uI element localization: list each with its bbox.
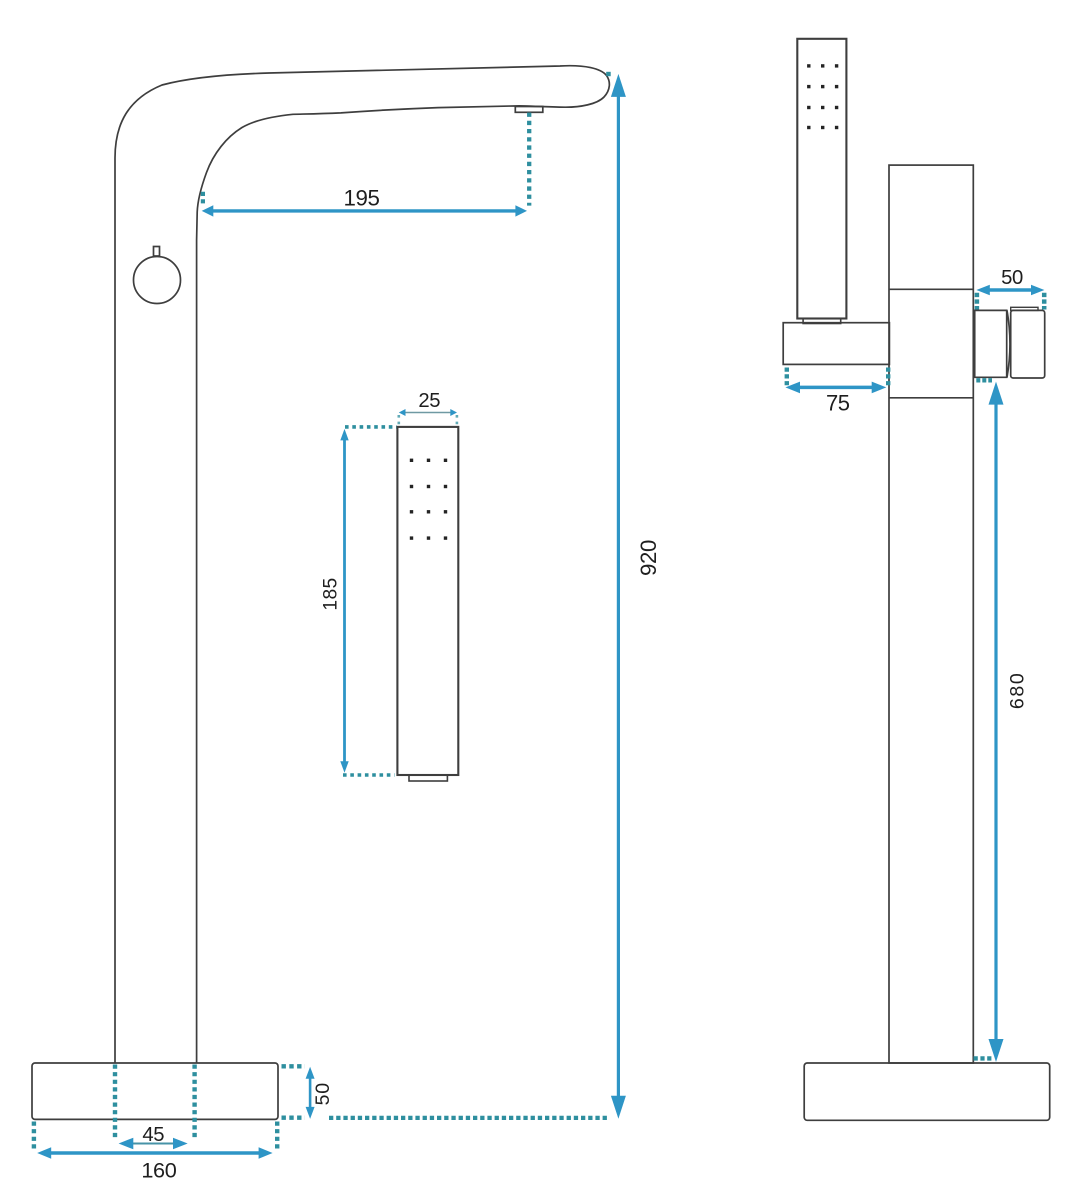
svg-text:680: 680 [1007,672,1029,709]
svg-text:160: 160 [141,1158,176,1183]
svg-text:195: 195 [343,186,379,211]
svg-text:50: 50 [312,1082,334,1105]
svg-text:185: 185 [321,577,342,610]
svg-text:50: 50 [1001,267,1023,289]
svg-text:45: 45 [142,1124,164,1146]
svg-text:75: 75 [826,390,850,415]
svg-text:25: 25 [418,390,440,412]
svg-text:920: 920 [636,540,661,576]
